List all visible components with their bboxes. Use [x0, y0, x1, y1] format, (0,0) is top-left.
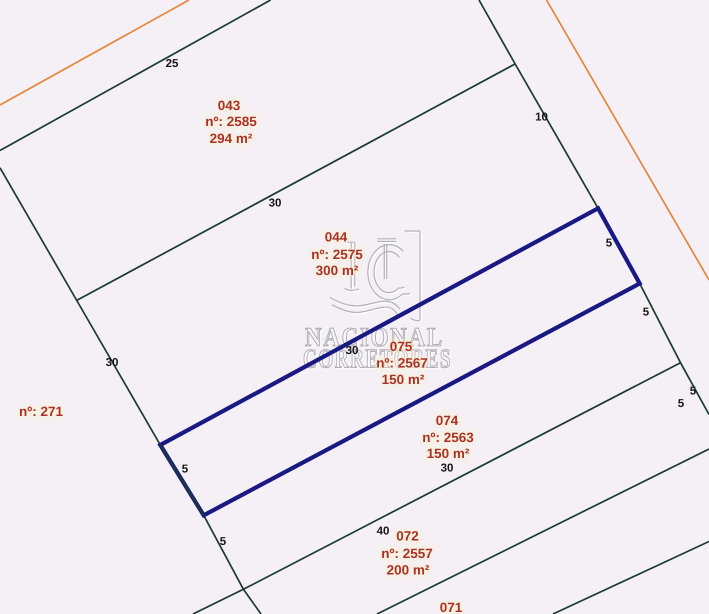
svg-text:40: 40: [377, 525, 390, 537]
svg-text:150 m²: 150 m²: [382, 372, 425, 387]
svg-text:30: 30: [106, 357, 119, 369]
svg-text:30: 30: [346, 345, 359, 357]
svg-text:30: 30: [269, 198, 282, 210]
svg-text:5: 5: [643, 307, 650, 319]
svg-text:075: 075: [390, 339, 413, 354]
svg-text:30: 30: [441, 462, 454, 474]
svg-text:5: 5: [606, 238, 613, 250]
svg-text:044: 044: [325, 230, 348, 245]
svg-text:5: 5: [182, 464, 189, 476]
svg-text:25: 25: [166, 58, 179, 70]
svg-text:nº: 2567: nº: 2567: [376, 356, 427, 371]
svg-text:294 m²: 294 m²: [210, 131, 253, 146]
svg-text:nº: 271: nº: 271: [19, 404, 63, 419]
svg-text:071: 071: [440, 600, 463, 614]
svg-text:nº: 2575: nº: 2575: [311, 247, 363, 262]
svg-text:5: 5: [690, 386, 697, 398]
svg-text:nº: 2585: nº: 2585: [205, 114, 257, 129]
svg-text:nº: 2557: nº: 2557: [381, 546, 432, 561]
svg-text:074: 074: [436, 413, 459, 428]
svg-text:072: 072: [396, 529, 419, 544]
svg-text:300 m²: 300 m²: [316, 263, 359, 278]
svg-text:150 m²: 150 m²: [427, 446, 470, 461]
svg-text:200 m²: 200 m²: [387, 562, 430, 577]
svg-text:nº: 2563: nº: 2563: [422, 430, 474, 445]
svg-text:5: 5: [220, 536, 227, 548]
svg-text:5: 5: [678, 398, 685, 410]
svg-text:043: 043: [218, 98, 241, 113]
svg-text:10: 10: [535, 112, 548, 124]
